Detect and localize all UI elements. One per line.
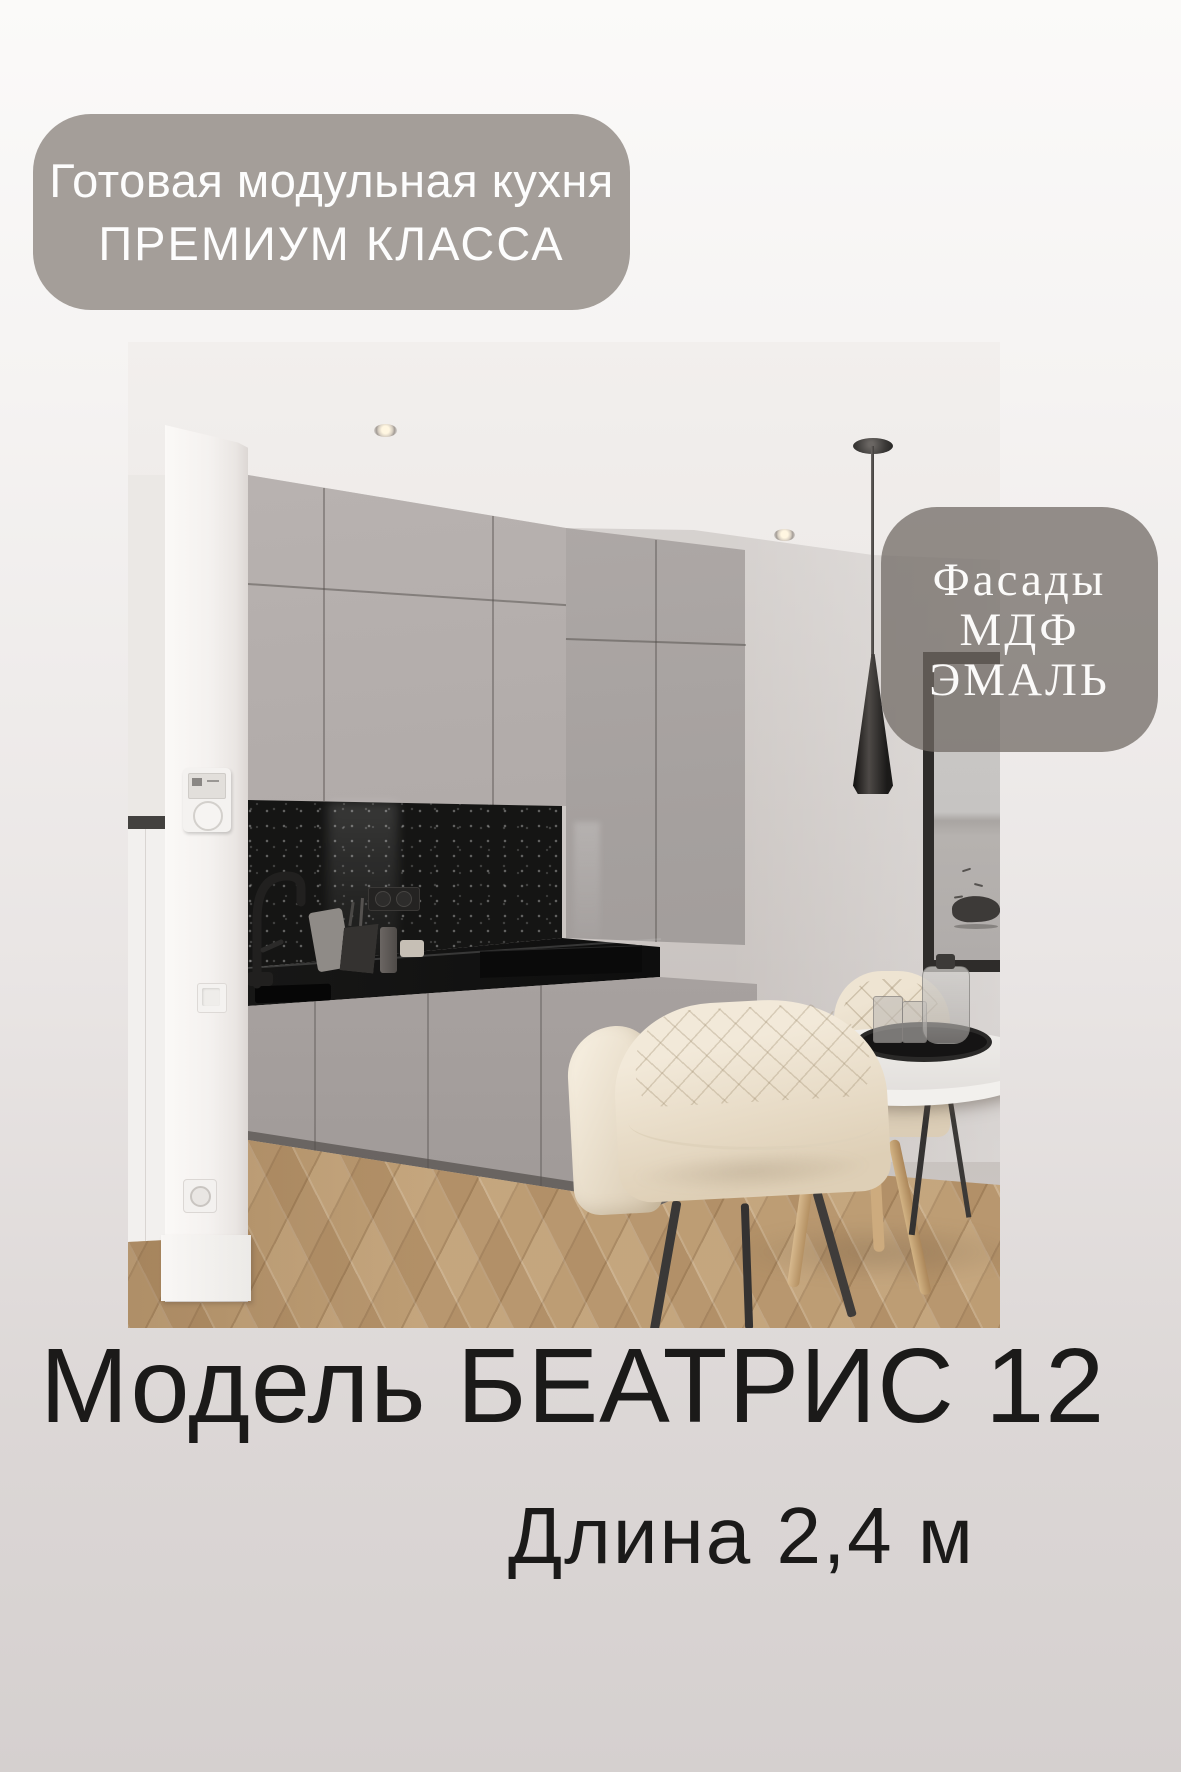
cabinet-seam [655, 540, 657, 942]
pendant-rod [871, 446, 874, 656]
carafe [922, 966, 970, 1044]
side-badge-line1: Фасады [933, 555, 1107, 605]
thermostat-screen [188, 773, 226, 799]
chair-leg [650, 1200, 682, 1328]
cabinet-seam [314, 1001, 316, 1151]
chair-leg [812, 1190, 856, 1317]
cabinet-seam [323, 488, 325, 801]
thermostat-panel [183, 768, 231, 832]
light-switch [197, 983, 227, 1013]
side-badge-line2: МДФ [960, 605, 1080, 655]
chair-leg [741, 1203, 753, 1328]
switch-rocker [202, 988, 220, 1006]
top-badge-line2: ПРЕМИУМ КЛАССА [98, 216, 564, 271]
recessed-light [374, 424, 397, 437]
left-room-counter-edge [128, 816, 165, 829]
quilted-upholstery [633, 1001, 873, 1108]
cooktop [480, 945, 642, 978]
dining-chair-front [562, 994, 904, 1328]
top-badge-line1: Готовая модульная кухня [49, 153, 613, 208]
screen-graphic [207, 780, 219, 782]
carafe-cap [936, 954, 955, 969]
model-title: Модель БЕАТРИС 12 [40, 1326, 1105, 1447]
white-column [165, 425, 248, 1302]
side-badge: Фасады МДФ ЭМАЛЬ [881, 507, 1158, 752]
kitchen-photo [128, 342, 1000, 1328]
socket-hole [375, 891, 391, 907]
knife-block [339, 920, 378, 973]
chair-piping-seam [629, 1097, 879, 1150]
side-badge-line3: ЭМАЛЬ [929, 655, 1110, 705]
left-room-glimpse [128, 475, 165, 1242]
cabinet-seam [540, 985, 542, 1187]
faucet [243, 854, 318, 989]
socket-hole [396, 891, 412, 907]
cabinet-reflection [574, 822, 600, 940]
power-outlet [183, 1179, 217, 1213]
boat-silhouette [951, 895, 1000, 923]
top-badge: Готовая модульная кухня ПРЕМИУМ КЛАССА [33, 114, 630, 310]
thermostat-dial [193, 801, 223, 831]
baseboard [161, 1235, 251, 1301]
bird-mark [974, 883, 983, 887]
outlet-socket [190, 1186, 211, 1207]
screen-graphic [192, 778, 202, 786]
recessed-light [774, 529, 795, 541]
length-subtitle: Длина 2,4 м [508, 1490, 975, 1582]
sponge [400, 940, 424, 957]
bird-mark [962, 868, 971, 873]
promo-poster: Готовая модульная кухня ПРЕМИУМ КЛАССА Ф… [0, 0, 1181, 1772]
power-socket [368, 887, 420, 911]
canister [380, 927, 397, 973]
boat-reflection [954, 924, 998, 929]
cabinet-seam [492, 516, 494, 805]
cabinet-seam [427, 993, 429, 1169]
